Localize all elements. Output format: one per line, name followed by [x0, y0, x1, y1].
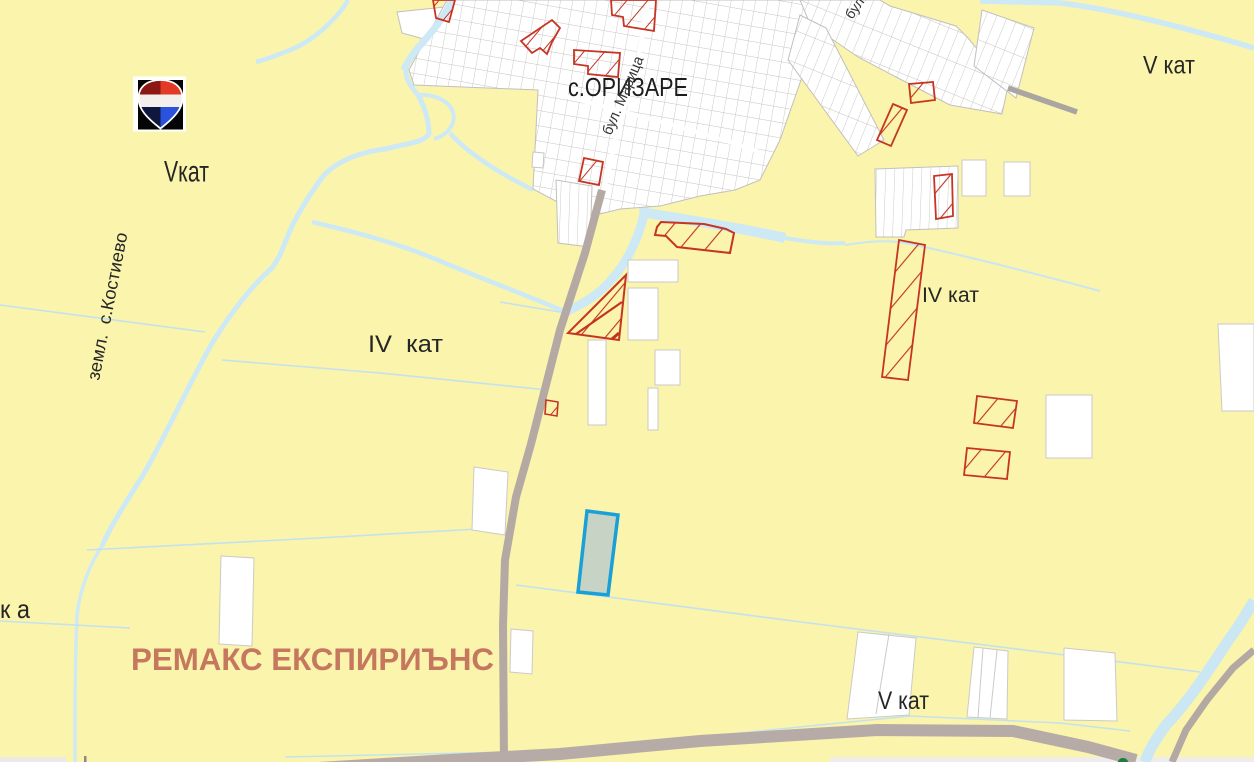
svg-text:IV кат: IV кат	[922, 284, 979, 307]
svg-text:к а: к а	[0, 594, 30, 624]
svg-text:Vкат: Vкат	[164, 156, 209, 189]
svg-text:V кат: V кат	[878, 687, 929, 715]
svg-text:V кат: V кат	[1143, 51, 1195, 79]
svg-text:РЕМАКС ЕКСПИРИЪНС: РЕМАКС ЕКСПИРИЪНС	[131, 641, 494, 677]
svg-text:IV кат: IV кат	[368, 331, 443, 358]
